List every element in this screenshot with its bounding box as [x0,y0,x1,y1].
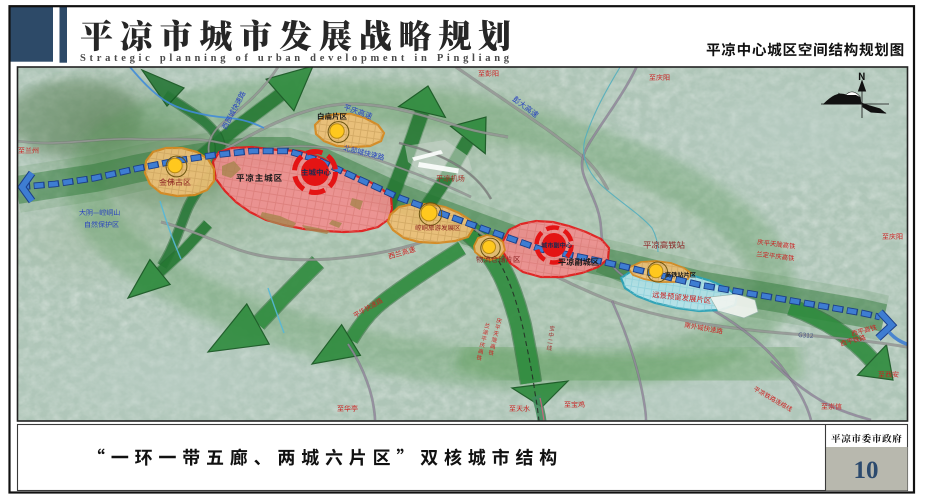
svg-text:10: 10 [854,457,879,484]
